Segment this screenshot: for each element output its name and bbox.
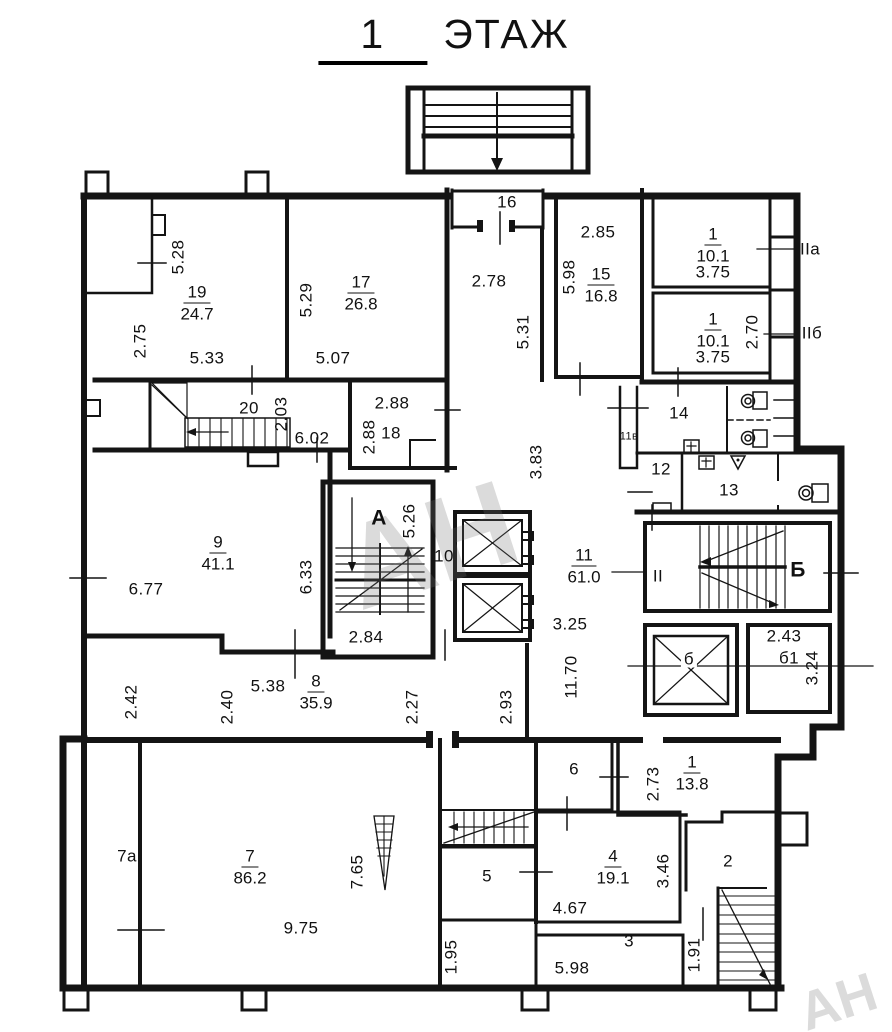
room-11v-number: 11в [620,432,638,443]
title-floor-number: 1 [318,11,427,65]
room-1a-label: 110.1 [696,226,729,265]
dim-2-40: 2.40 [219,690,236,725]
dim-2-84: 2.84 [349,629,384,646]
dim-2-75: 2.75 [132,324,149,359]
dim-5-98-b: 5.98 [555,960,590,977]
room-b1-number: б1 [779,650,799,667]
room-18-number: 18 [381,425,401,442]
dim-5-31: 5.31 [515,315,532,350]
dim-3-24: 3.24 [804,651,821,686]
room-17-label: 1726.8 [344,274,377,313]
room-4-label: 419.1 [596,848,629,887]
dim-6-33: 6.33 [298,560,315,595]
dim-2-78: 2.78 [472,273,507,290]
entrance-canopy [408,88,588,172]
dim-1-95: 1.95 [443,940,460,975]
room-14-number: 14 [669,405,689,422]
room-3-number: 3 [624,933,634,950]
title-floor-word: ЭТАЖ [443,11,569,58]
floor-plan: АН АН 1 ЭТАЖ 1924.7 1726.8 1516.8 110.1 … [0,0,892,1032]
stair-20 [152,383,290,447]
dim-5-26: 5.26 [401,504,418,539]
dim-3-25: 3.25 [553,616,588,633]
room-19-label: 1924.7 [180,284,213,323]
floor-plan-drawing [0,0,892,1032]
room-12-number: 12 [651,461,671,478]
dim-6-77: 6.77 [129,581,164,598]
dim-2-73: 2.73 [645,767,662,802]
room-5-number: 5 [482,868,492,885]
dim-11-70: 11.70 [563,655,580,698]
dim-5-38: 5.38 [251,678,286,695]
dim-5-29: 5.29 [298,283,315,318]
dim-5-98-a: 5.98 [561,260,578,295]
room-1b-label: 110.1 [696,311,729,350]
dim-2-88-a: 2.88 [375,395,410,412]
page-title: 1 ЭТАЖ [318,11,569,65]
stair-bottom-right [718,888,776,988]
dim-4-67: 4.67 [553,900,588,917]
stair-a-letter: А [371,508,387,529]
dim-3-75-b: 3.75 [696,349,731,366]
dim-2-27: 2.27 [404,690,421,725]
entrance-marker-ii: ІІ [653,568,663,585]
dim-2-85: 2.85 [581,224,616,241]
room-7-label: 786.2 [233,848,266,887]
dim-9-75: 9.75 [284,920,319,937]
dim-2-03: 2.03 [273,397,290,432]
room-8-label: 835.9 [299,673,332,712]
dim-5-07: 5.07 [316,350,351,367]
entrance-marker-iib: ІІб [802,325,822,342]
room-11-label: 1161.0 [567,547,600,586]
room-1c-label: 113.8 [675,754,708,793]
room-2-number: 2 [723,853,733,870]
stair-b-letter: Б [790,560,806,581]
dim-3-83: 3.83 [528,445,545,480]
room-20-number: 20 [239,400,259,417]
room-9-label: 941.1 [201,534,234,573]
dim-2-42: 2.42 [123,685,140,720]
dim-5-28: 5.28 [170,240,187,275]
dim-1-91: 1.91 [686,938,703,973]
elevator-shafts [455,512,533,640]
dim-5-33: 5.33 [190,350,225,367]
dim-3-75-a: 3.75 [696,264,731,281]
dim-2-70: 2.70 [744,315,761,350]
entrance-marker-iia: ІІа [800,241,820,258]
room-15-label: 1516.8 [584,266,617,305]
dim-2-43: 2.43 [767,628,802,645]
elevator-b-letter: б [681,651,697,668]
room-13-number: 13 [719,482,739,499]
room-16-number: 16 [497,194,517,211]
ramp-room-7 [374,816,394,890]
interior-walls-upper [88,190,797,470]
dim-6-02: 6.02 [295,430,330,447]
room-7a-number: 7а [117,848,137,865]
dim-2-88-b: 2.88 [361,420,378,455]
dim-3-46: 3.46 [655,854,672,889]
room-10-number: 10 [434,548,454,565]
dim-2-93: 2.93 [498,690,515,725]
room-6-number: 6 [569,761,579,778]
dim-7-65: 7.65 [349,855,366,890]
